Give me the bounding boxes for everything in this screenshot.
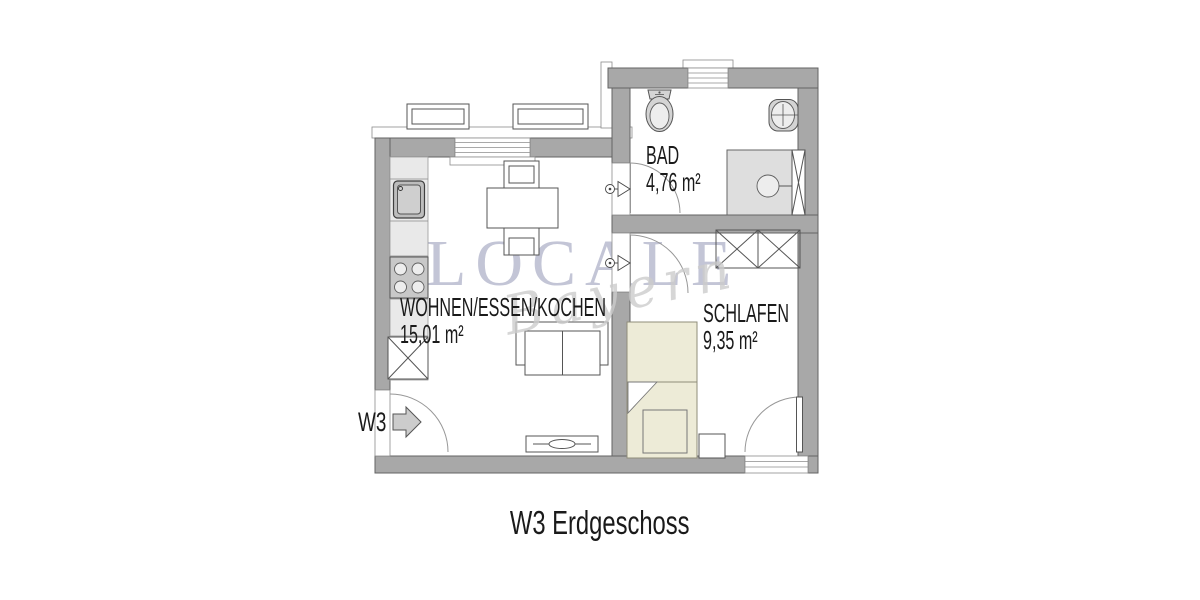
duct-shaft-icon: [792, 150, 805, 215]
plan-title: W3 Erdgeschoss: [0, 504, 1200, 542]
toilet-icon: [646, 90, 673, 132]
plan-title-text: W3 Erdgeschoss: [510, 504, 690, 542]
floorplan-canvas: LOCALE: [0, 0, 1200, 600]
bathroom-sink-icon: [769, 100, 798, 132]
dining-chair: [504, 161, 539, 188]
shower-icon: [727, 150, 793, 215]
bedroom-french-window: [745, 456, 808, 473]
room-label-bedroom: SCHLAFEN 9,35 m²: [703, 300, 789, 354]
dining-table: [487, 188, 558, 228]
room-name: SCHLAFEN: [703, 300, 789, 327]
room-area: 9,35 m²: [703, 327, 789, 354]
window-shutter-icon: [407, 104, 588, 129]
room-area: 15,01 m²: [400, 321, 606, 348]
room-label-bath: BAD 4,76 m²: [646, 142, 701, 196]
room-area: 4,76 m²: [646, 169, 701, 196]
room-label-living: WOHNEN/ESSEN/KOCHEN 15,01 m²: [400, 294, 606, 348]
kitchen-sink-icon: [394, 181, 425, 218]
bed-icon: [627, 322, 697, 458]
room-name: WOHNEN/ESSEN/KOCHEN: [400, 294, 606, 321]
nightstand-icon: [699, 434, 725, 458]
entrance-label: W3: [358, 407, 386, 438]
dining-chair: [504, 228, 539, 255]
bathroom-window: [688, 68, 728, 88]
room-name: BAD: [646, 142, 701, 169]
entrance-arrow-icon: [393, 407, 421, 437]
tv-board-icon: [526, 436, 598, 452]
balcony-door-arc: [745, 397, 803, 452]
